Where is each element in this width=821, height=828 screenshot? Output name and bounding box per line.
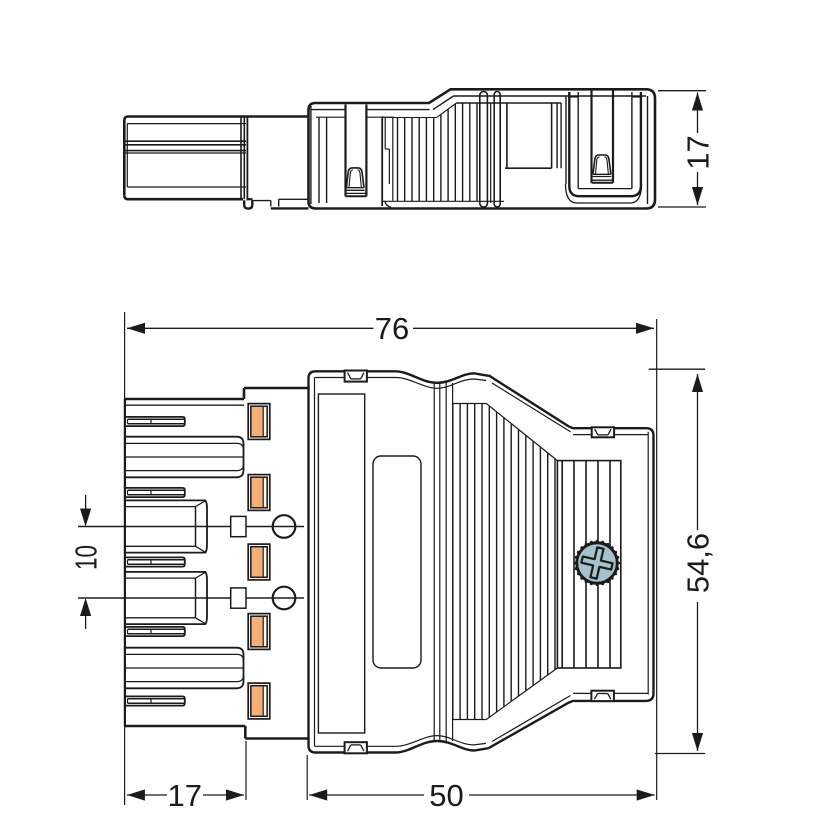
svg-text:17: 17 [680,135,715,169]
svg-text:17: 17 [167,778,201,813]
svg-text:50: 50 [429,778,463,813]
svg-text:10: 10 [68,545,103,570]
svg-text:76: 76 [375,311,409,346]
svg-text:54,6: 54,6 [680,533,715,593]
